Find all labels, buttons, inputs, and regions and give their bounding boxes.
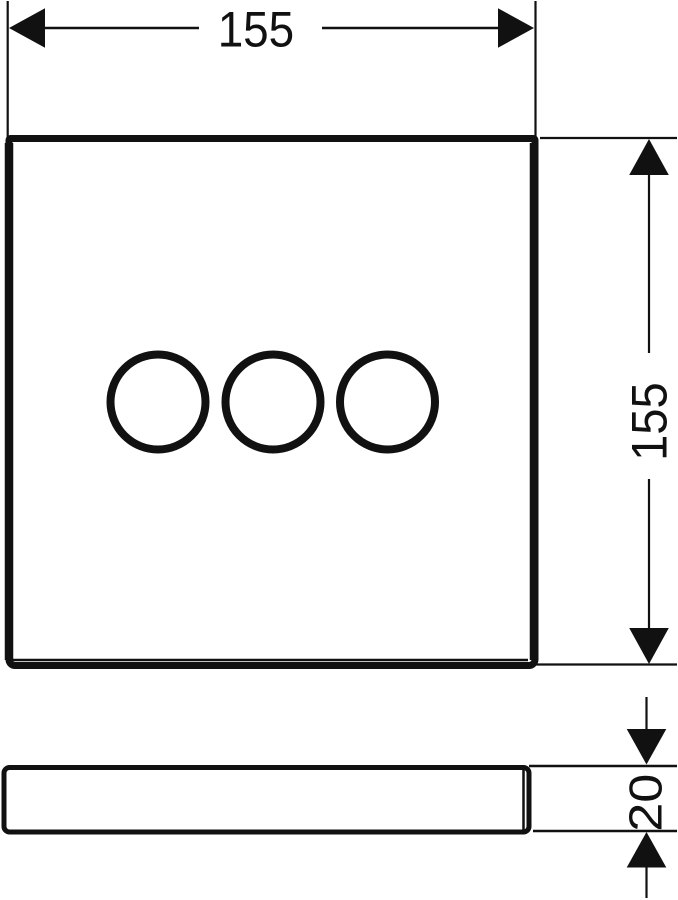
svg-text:155: 155 [218, 1, 295, 57]
svg-text:155: 155 [622, 382, 678, 461]
svg-text:20: 20 [620, 774, 672, 832]
